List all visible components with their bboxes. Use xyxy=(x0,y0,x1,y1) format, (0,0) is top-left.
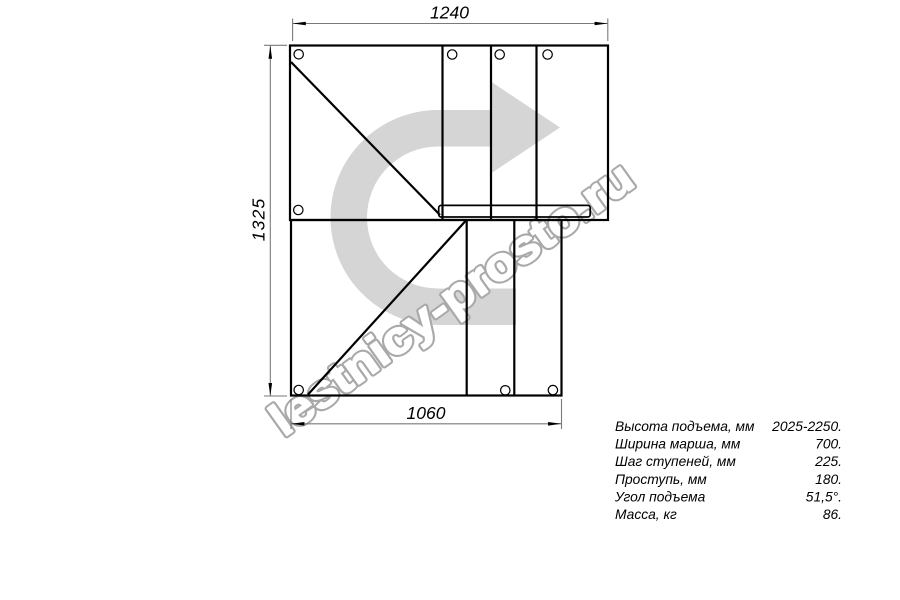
svg-text:Высота подъема, мм: Высота подъема, мм xyxy=(615,419,755,434)
svg-text:Угол подъема: Угол подъема xyxy=(614,489,706,504)
svg-text:Ширина марша, мм: Ширина марша, мм xyxy=(615,437,741,452)
svg-text:225.: 225. xyxy=(814,454,842,469)
svg-text:1060: 1060 xyxy=(407,403,446,423)
svg-text:Проступь, мм: Проступь, мм xyxy=(615,472,707,487)
svg-text:180.: 180. xyxy=(815,472,842,487)
svg-text:1325: 1325 xyxy=(249,198,269,242)
svg-text:Шаг ступеней, мм: Шаг ступеней, мм xyxy=(615,454,736,469)
svg-text:51,5°.: 51,5°. xyxy=(806,489,842,504)
svg-text:2025-2250.: 2025-2250. xyxy=(771,419,842,434)
svg-text:1240: 1240 xyxy=(430,3,469,23)
svg-text:700.: 700. xyxy=(815,437,842,452)
svg-text:Масса, кг: Масса, кг xyxy=(615,507,677,522)
svg-text:86.: 86. xyxy=(823,507,842,522)
